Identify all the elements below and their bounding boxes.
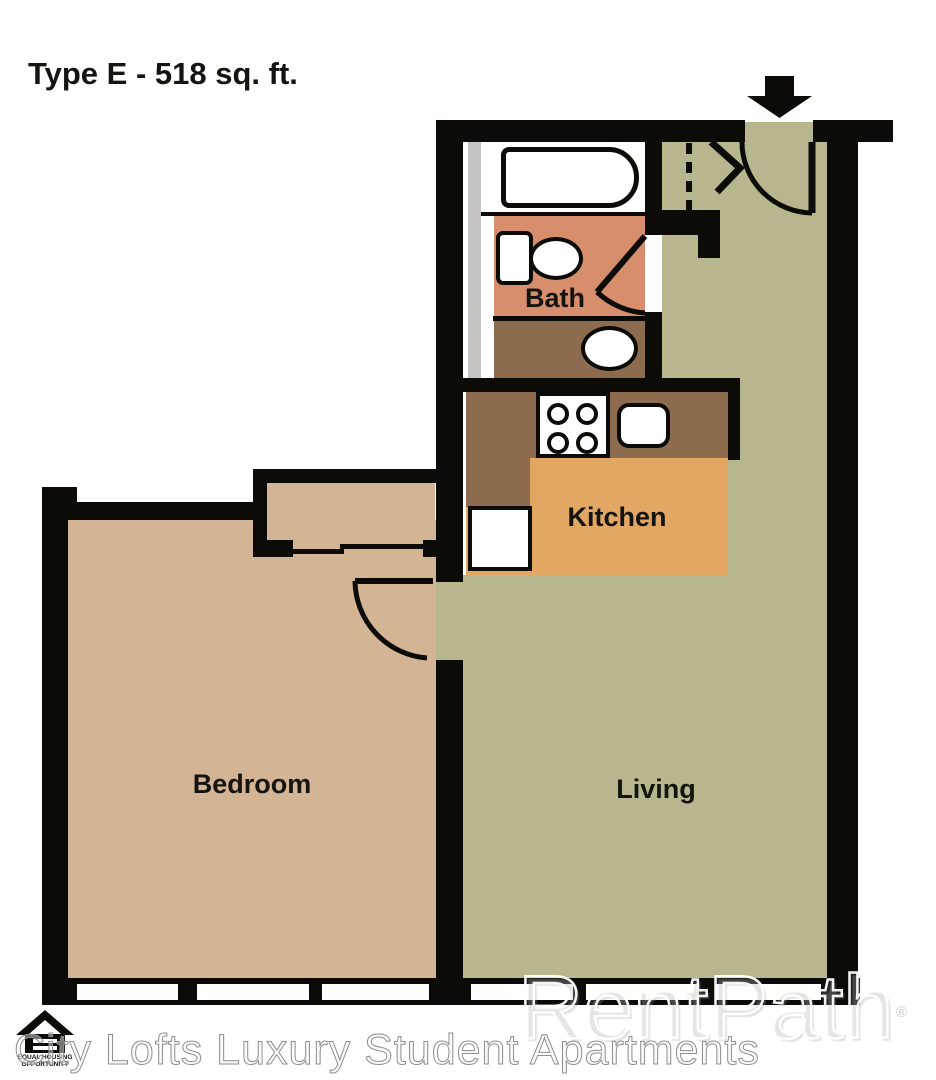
kitchen-label: Kitchen	[537, 504, 697, 531]
rentpath-registered-mark: ®	[896, 1004, 907, 1021]
tub-partition-line	[481, 212, 645, 216]
bath-label: Bath	[495, 285, 615, 312]
floor-plan-page: Type E - 518 sq. ft. B	[0, 0, 936, 1080]
stove-burner-2	[576, 403, 598, 425]
kitchen-top-wall	[463, 378, 740, 392]
stove-burner-3	[547, 432, 569, 454]
bedroom-closet-floor	[267, 483, 435, 546]
bedroom-window-1	[73, 980, 182, 1004]
bedroom-label: Bedroom	[152, 771, 352, 798]
vanity-partition-line	[493, 316, 645, 321]
entry-closet-wall-stub	[698, 235, 720, 258]
plumbing-chase-strip	[468, 142, 481, 378]
living-label: Living	[576, 776, 736, 803]
bedroom-window-2	[193, 980, 313, 1004]
top-wall-left-segment	[436, 120, 745, 142]
plan-title: Type E - 518 sq. ft.	[28, 56, 298, 92]
rentpath-watermark: RentPath	[518, 963, 893, 1053]
stove-burner-1	[547, 403, 569, 425]
bedroom-window-3	[318, 980, 433, 1004]
toilet-bowl	[529, 237, 583, 280]
refrigerator	[468, 506, 532, 571]
vanity-sink	[581, 326, 638, 371]
stove-burner-4	[576, 432, 598, 454]
stove	[536, 392, 610, 458]
closet-sliding-door-rear	[340, 544, 425, 549]
bedroom-top-wall	[42, 502, 253, 520]
center-wall-upper	[436, 120, 463, 582]
center-wall-lower	[436, 660, 463, 1005]
kitchen-counter-left	[466, 392, 530, 507]
bedroom-doorway-floor	[436, 582, 463, 660]
kitchen-sink	[617, 403, 670, 448]
left-exterior-wall	[42, 487, 68, 1005]
closet-top-wall	[253, 469, 437, 483]
kitchen-right-wall-stub	[728, 392, 740, 460]
closet-left-jamb	[253, 469, 267, 540]
closet-right-foot	[423, 540, 437, 557]
closet-left-foot	[253, 540, 293, 557]
bathtub	[501, 147, 639, 208]
entry-closet-wall	[650, 210, 720, 235]
bedroom-floor	[68, 520, 436, 978]
toilet-tank	[496, 231, 533, 285]
entry-arrow-icon	[747, 76, 812, 118]
closet-sliding-door-front	[291, 549, 344, 554]
right-exterior-wall	[827, 122, 858, 1005]
